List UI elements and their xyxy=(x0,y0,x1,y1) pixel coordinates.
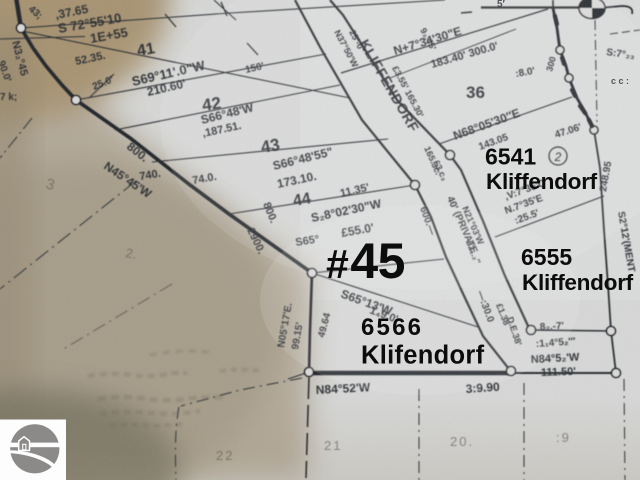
svg-text:6566: 6566 xyxy=(361,314,423,341)
svg-text:6555: 6555 xyxy=(521,244,572,270)
svg-text:#45: #45 xyxy=(326,233,405,289)
svg-text:6541: 6541 xyxy=(485,144,536,170)
svg-text:Klifendorf: Klifendorf xyxy=(361,342,485,370)
svg-text:Kliffendorf: Kliffendorf xyxy=(522,270,634,295)
svg-text:Kliffendorf: Kliffendorf xyxy=(486,169,598,194)
